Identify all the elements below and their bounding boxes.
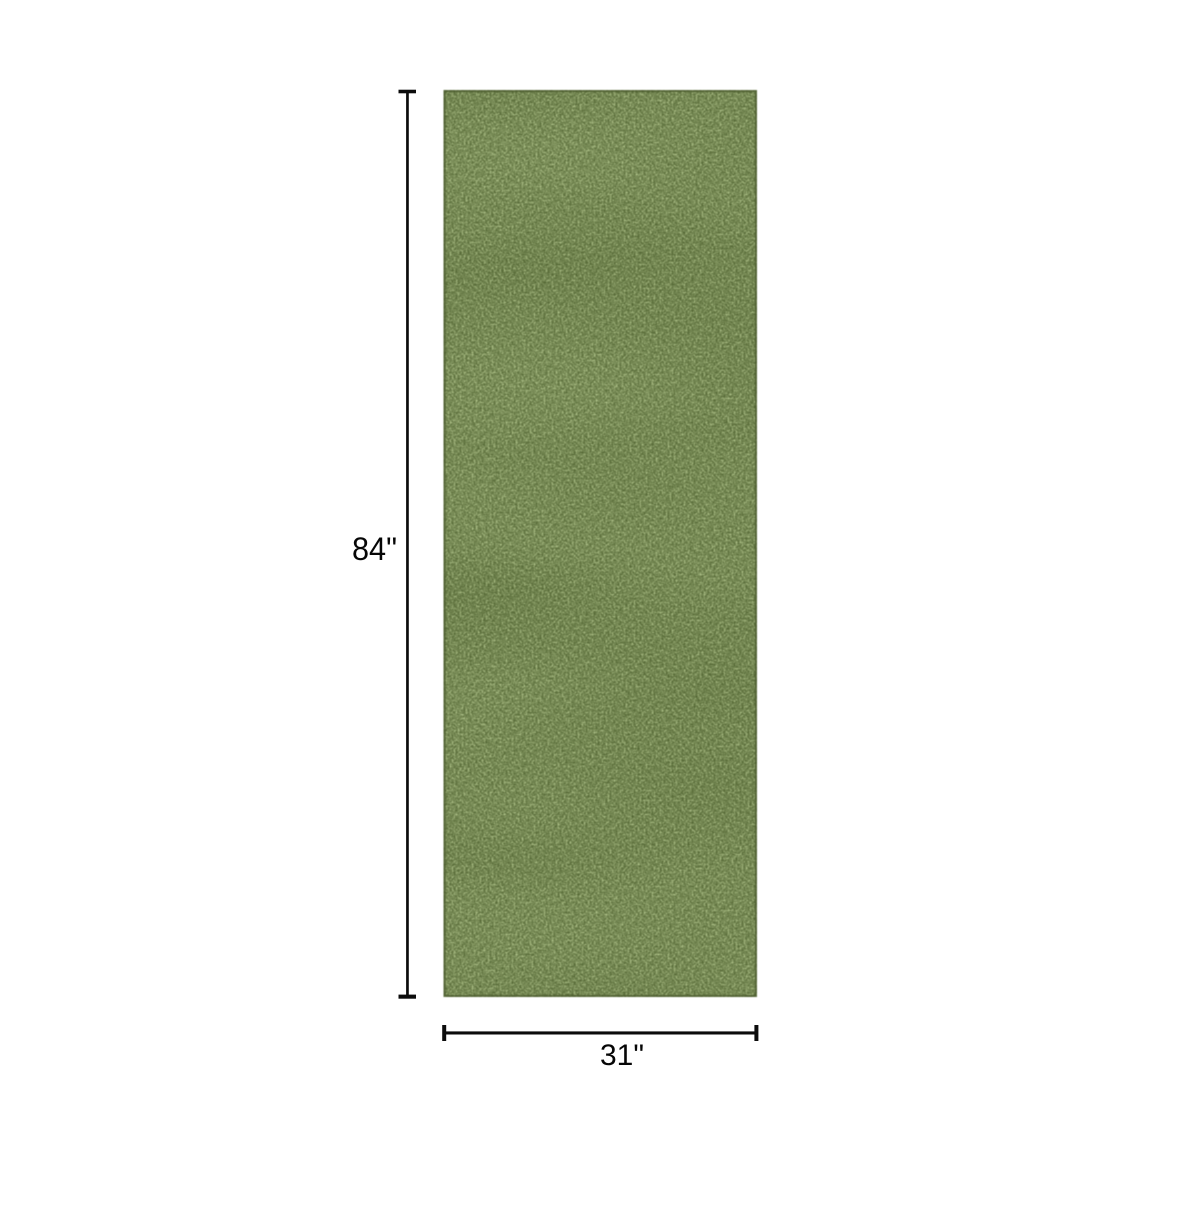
svg-text:31": 31" xyxy=(600,1039,644,1072)
svg-text:84": 84" xyxy=(352,531,397,567)
